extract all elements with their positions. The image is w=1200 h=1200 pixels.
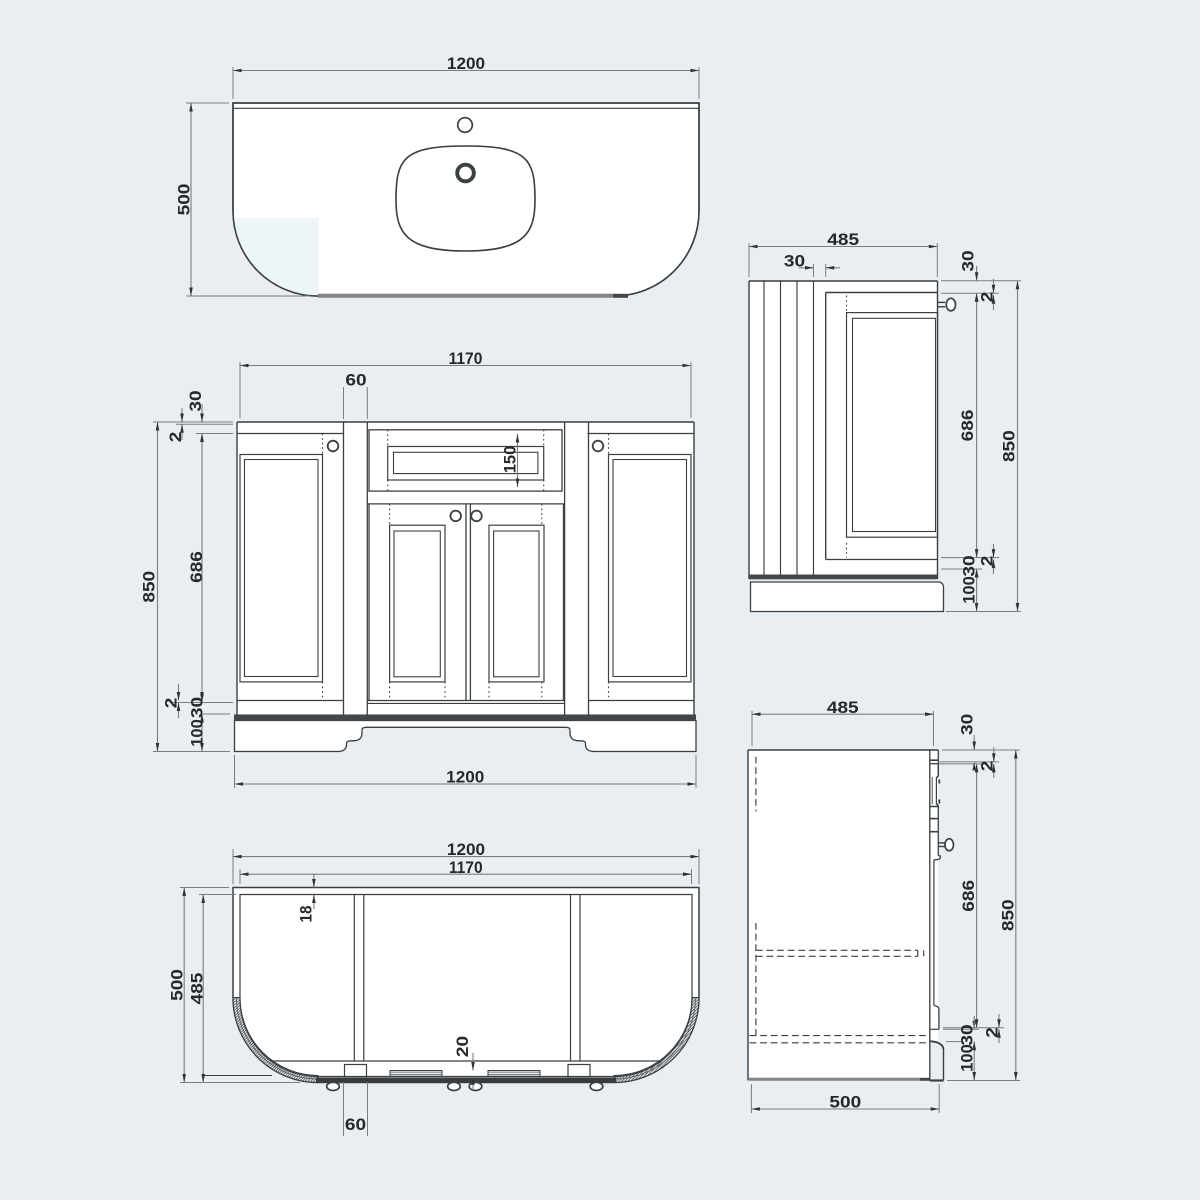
svg-text:1200: 1200 <box>447 54 485 73</box>
svg-text:1170: 1170 <box>449 858 483 877</box>
svg-text:2: 2 <box>161 698 180 709</box>
svg-text:686: 686 <box>958 410 977 442</box>
svg-text:100: 100 <box>959 576 978 604</box>
svg-text:30: 30 <box>186 390 205 411</box>
svg-text:686: 686 <box>187 551 206 583</box>
svg-text:485: 485 <box>188 973 207 1005</box>
svg-text:30: 30 <box>957 714 976 735</box>
svg-text:2: 2 <box>166 432 185 443</box>
svg-text:150: 150 <box>500 446 519 474</box>
svg-text:2: 2 <box>977 556 996 567</box>
svg-text:850: 850 <box>998 899 1017 931</box>
svg-text:30: 30 <box>959 555 978 576</box>
svg-text:30: 30 <box>187 697 206 718</box>
svg-text:18: 18 <box>296 906 315 923</box>
svg-text:2: 2 <box>977 292 996 303</box>
svg-text:1170: 1170 <box>449 349 483 368</box>
svg-text:30: 30 <box>784 251 805 270</box>
svg-text:30: 30 <box>958 1024 977 1045</box>
svg-text:2: 2 <box>978 761 997 772</box>
svg-text:500: 500 <box>174 184 193 216</box>
svg-text:850: 850 <box>139 571 158 603</box>
svg-text:500: 500 <box>829 1093 861 1112</box>
svg-text:60: 60 <box>345 1115 366 1134</box>
svg-text:60: 60 <box>345 370 366 389</box>
svg-text:850: 850 <box>999 430 1018 462</box>
svg-text:1200: 1200 <box>447 840 485 859</box>
svg-text:100: 100 <box>187 719 206 747</box>
svg-text:500: 500 <box>168 969 187 1001</box>
svg-text:1200: 1200 <box>446 768 484 787</box>
svg-text:20: 20 <box>453 1036 472 1057</box>
svg-text:485: 485 <box>827 698 859 717</box>
svg-text:2: 2 <box>982 1027 1001 1038</box>
svg-text:485: 485 <box>827 230 859 249</box>
svg-text:30: 30 <box>958 250 977 271</box>
svg-text:100: 100 <box>958 1044 977 1072</box>
svg-text:686: 686 <box>959 880 978 912</box>
